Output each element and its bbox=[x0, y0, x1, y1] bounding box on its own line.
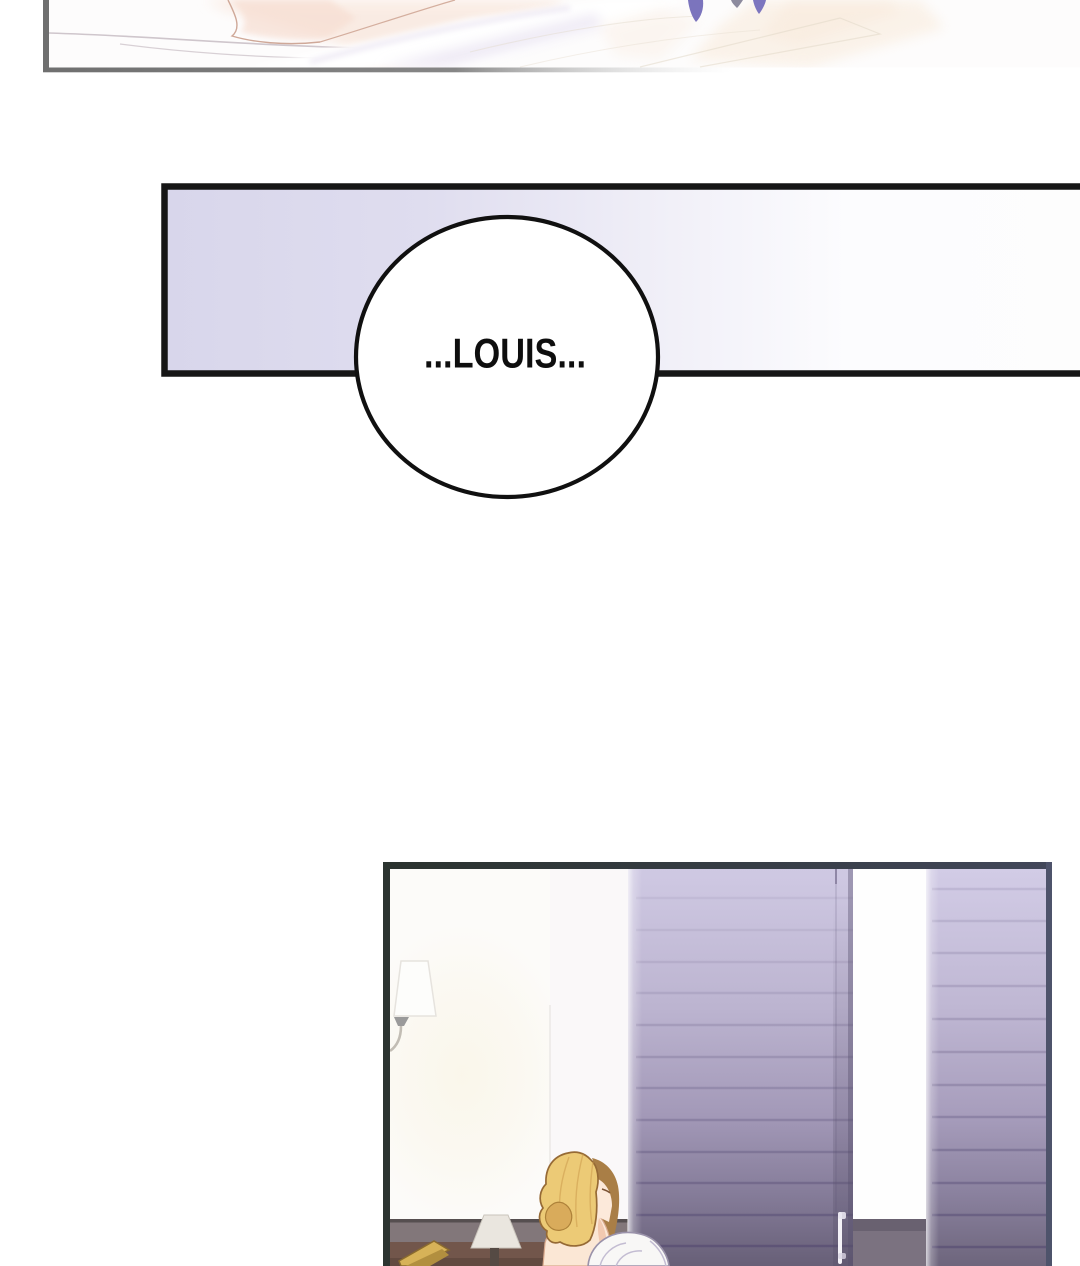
svg-text:...LOUIS...: ...LOUIS... bbox=[424, 330, 586, 377]
